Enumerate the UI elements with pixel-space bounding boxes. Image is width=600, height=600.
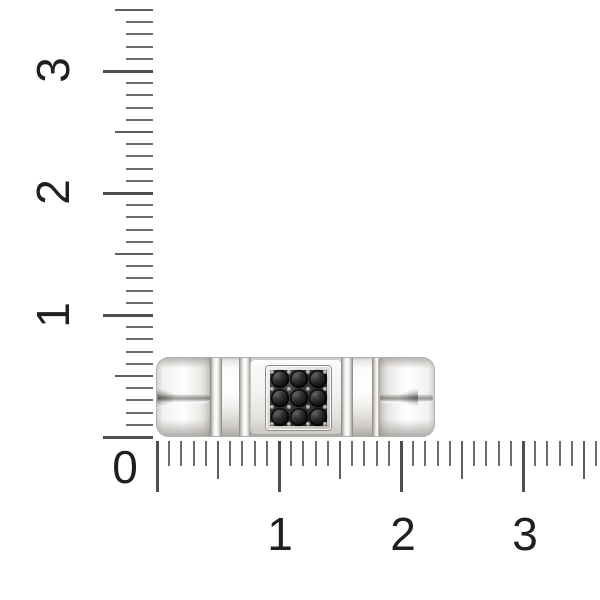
ruler-tick — [339, 441, 341, 479]
ruler-tick — [205, 441, 207, 466]
ruler-label: 3 — [30, 57, 76, 83]
ruler-tick — [241, 441, 243, 466]
prong-dot — [323, 422, 327, 426]
band-divider — [211, 358, 221, 436]
ruler-tick — [534, 441, 536, 466]
ruler-tick — [510, 441, 512, 466]
ruler-tick — [126, 326, 153, 328]
ruler-tick — [126, 412, 153, 414]
ruler-tick — [485, 441, 487, 466]
ruler-tick — [229, 441, 231, 466]
ruler-tick — [290, 441, 292, 466]
ruler-label: 3 — [512, 511, 538, 557]
ruler-tick — [583, 441, 585, 479]
ruler-tick — [126, 204, 153, 206]
ruler-tick — [126, 338, 153, 340]
ruler-tick — [193, 441, 195, 466]
ruler-tick — [103, 314, 153, 317]
prong-dot — [306, 405, 310, 409]
ruler-tick — [595, 441, 597, 466]
ruler-tick — [126, 265, 153, 267]
ruler-label: 1 — [267, 511, 293, 557]
ruler-tick — [376, 441, 378, 466]
band-divider — [342, 358, 352, 436]
ruler-tick — [126, 82, 153, 84]
prong-dot — [323, 387, 327, 391]
prong-dot — [270, 370, 274, 374]
ruler-tick — [126, 290, 153, 292]
ruler-tick — [126, 46, 153, 48]
ruler-tick — [302, 441, 304, 466]
ruler-tick — [126, 277, 153, 279]
ring-left-shoulder — [156, 357, 212, 437]
ruler-tick — [126, 216, 153, 218]
ruler-tick — [168, 441, 170, 466]
ruler-tick — [180, 441, 182, 466]
ruler-tick — [126, 94, 153, 96]
ruler-tick — [254, 441, 256, 466]
black-gem — [309, 389, 327, 407]
black-gem — [290, 389, 308, 407]
prong-dot — [306, 370, 310, 374]
ruler-tick — [126, 363, 153, 365]
ring-photo — [156, 357, 435, 437]
ruler-label: 2 — [30, 179, 76, 205]
ruler-tick — [473, 441, 475, 466]
product-scale-photo: 123 123 0 — [0, 0, 600, 600]
prong-dot — [270, 387, 274, 391]
ruler-tick — [400, 441, 403, 492]
ruler-tick — [126, 119, 153, 121]
ruler-tick — [156, 441, 159, 492]
black-gem — [290, 408, 308, 426]
ruler-tick — [126, 180, 153, 182]
prong-dot — [306, 387, 310, 391]
prong-dot — [270, 405, 274, 409]
right-shoulder-notch — [399, 389, 418, 406]
ruler-tick — [363, 441, 365, 466]
ruler-label: 1 — [30, 302, 76, 328]
prong-dot — [287, 405, 291, 409]
band-divider — [240, 358, 250, 436]
ruler-tick — [126, 168, 153, 170]
ruler-tick — [126, 351, 153, 353]
ruler-tick — [126, 424, 153, 426]
ruler-tick — [115, 131, 153, 133]
ruler-tick — [126, 399, 153, 401]
ruler-tick — [351, 441, 353, 466]
ruler-tick — [115, 9, 153, 11]
ruler-tick — [126, 107, 153, 109]
ruler-tick — [388, 441, 390, 466]
ruler-tick — [126, 143, 153, 145]
ruler-tick — [126, 387, 153, 389]
ruler-tick — [115, 253, 153, 255]
prong-dot — [306, 422, 310, 426]
ruler-tick — [522, 441, 525, 492]
ruler-tick — [217, 441, 219, 479]
prong-dot — [270, 422, 274, 426]
ruler-tick — [498, 441, 500, 466]
prong-dot — [287, 387, 291, 391]
black-gem — [290, 370, 308, 388]
left-shoulder-notch — [157, 389, 176, 406]
prong-dot — [287, 370, 291, 374]
ruler-tick — [126, 302, 153, 304]
ruler-tick — [266, 441, 268, 466]
ruler-tick — [559, 441, 561, 466]
ruler-tick — [437, 441, 439, 466]
gem-plate — [266, 366, 331, 430]
ruler-tick — [103, 192, 153, 195]
ruler-tick — [126, 21, 153, 23]
ruler-tick — [126, 155, 153, 157]
ruler-tick — [278, 441, 281, 492]
ruler-tick — [327, 441, 329, 466]
ruler-label: 2 — [390, 511, 416, 557]
ruler-tick — [126, 229, 153, 231]
ruler-tick — [103, 436, 153, 439]
prong-dot — [287, 422, 291, 426]
ruler-tick — [424, 441, 426, 466]
ring-right-shoulder — [378, 357, 435, 437]
ruler-tick — [315, 441, 317, 466]
black-gem — [271, 389, 289, 407]
ruler-tick — [461, 441, 463, 479]
prong-dot — [323, 405, 327, 409]
ruler-tick — [546, 441, 548, 466]
ruler-tick — [115, 375, 153, 377]
prong-dot — [323, 370, 327, 374]
ruler-tick — [126, 58, 153, 60]
ruler-tick — [126, 241, 153, 243]
ruler-tick — [126, 33, 153, 35]
ruler-tick — [449, 441, 451, 466]
ruler-tick — [103, 70, 153, 73]
ruler-tick — [571, 441, 573, 466]
ruler-tick — [412, 441, 414, 466]
ruler-origin-label: 0 — [112, 444, 138, 490]
gem-plate-inner — [270, 370, 327, 426]
